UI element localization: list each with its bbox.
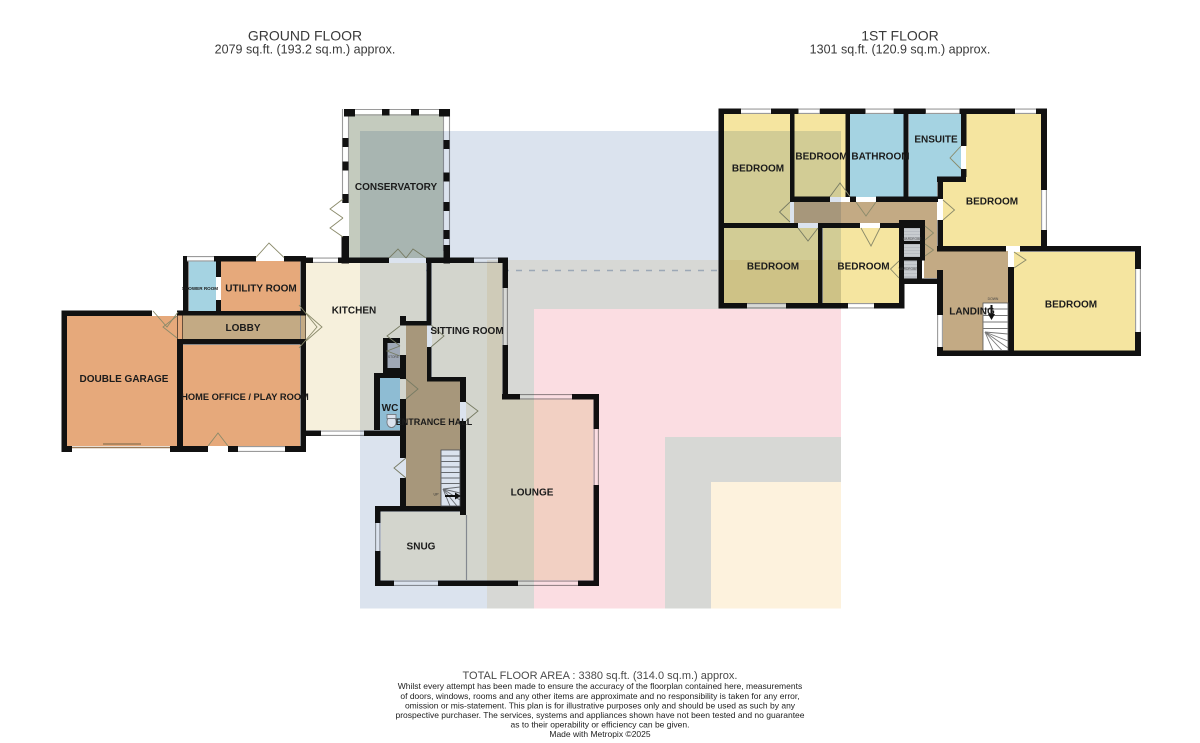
svg-text:LANDING: LANDING (949, 307, 995, 318)
svg-text:1ST FLOOR: 1ST FLOOR (861, 28, 939, 44)
svg-text:ENTRANCE HALL: ENTRANCE HALL (396, 417, 473, 427)
svg-text:LOBBY: LOBBY (226, 323, 261, 334)
svg-text:WARDROBE: WARDROBE (899, 267, 918, 271)
svg-text:BEDROOM: BEDROOM (747, 262, 799, 273)
svg-text:HOME OFFICE / PLAY ROOM: HOME OFFICE / PLAY ROOM (181, 392, 309, 402)
svg-text:WC: WC (382, 403, 399, 414)
svg-text:SHOWER ROOM: SHOWER ROOM (182, 286, 218, 291)
svg-text:BEDROOM: BEDROOM (732, 164, 784, 175)
svg-text:prospective purchaser. The ser: prospective purchaser. The services, sys… (395, 710, 804, 720)
svg-text:DOUBLE GARAGE: DOUBLE GARAGE (80, 374, 169, 385)
svg-text:as to their operability or eff: as to their operability or efficiency ca… (511, 720, 690, 730)
svg-text:SNUG: SNUG (407, 542, 436, 553)
svg-text:CONSERVATORY: CONSERVATORY (355, 182, 438, 193)
svg-text:BEDROOM: BEDROOM (795, 152, 847, 163)
svg-text:Made with Metropix ©2025: Made with Metropix ©2025 (549, 729, 651, 739)
svg-text:TOTAL FLOOR AREA : 3380 sq.ft.: TOTAL FLOOR AREA : 3380 sq.ft. (314.0 sq… (463, 670, 738, 682)
svg-text:BATHROOM: BATHROOM (851, 152, 909, 163)
svg-text:ENSUITE: ENSUITE (914, 135, 958, 146)
svg-text:Whilst every attempt has been: Whilst every attempt has been made to en… (398, 681, 802, 691)
svg-text:SITTING ROOM: SITTING ROOM (430, 326, 503, 337)
svg-text:WARDROBE: WARDROBE (903, 237, 922, 241)
svg-text:GROUND FLOOR: GROUND FLOOR (248, 28, 362, 44)
svg-text:KITCHEN: KITCHEN (332, 306, 376, 317)
svg-text:BEDROOM: BEDROOM (1045, 300, 1097, 311)
svg-text:omission or mis-statement. Thi: omission or mis-statement. This plan is … (405, 700, 796, 710)
svg-text:BEDROOM: BEDROOM (837, 262, 889, 273)
svg-text:LOUNGE: LOUNGE (511, 488, 554, 499)
svg-text:DOWN: DOWN (988, 297, 999, 301)
svg-text:1301 sq.ft. (120.9 sq.m.) appr: 1301 sq.ft. (120.9 sq.m.) approx. (810, 43, 991, 57)
svg-text:BEDROOM: BEDROOM (966, 197, 1018, 208)
svg-text:2079 sq.ft. (193.2 sq.m.) appr: 2079 sq.ft. (193.2 sq.m.) approx. (215, 43, 396, 57)
svg-text:UTILITY ROOM: UTILITY ROOM (225, 284, 296, 295)
svg-text:STORE: STORE (388, 355, 399, 359)
svg-text:of doors, windows, rooms and a: of doors, windows, rooms and any other i… (400, 691, 799, 701)
